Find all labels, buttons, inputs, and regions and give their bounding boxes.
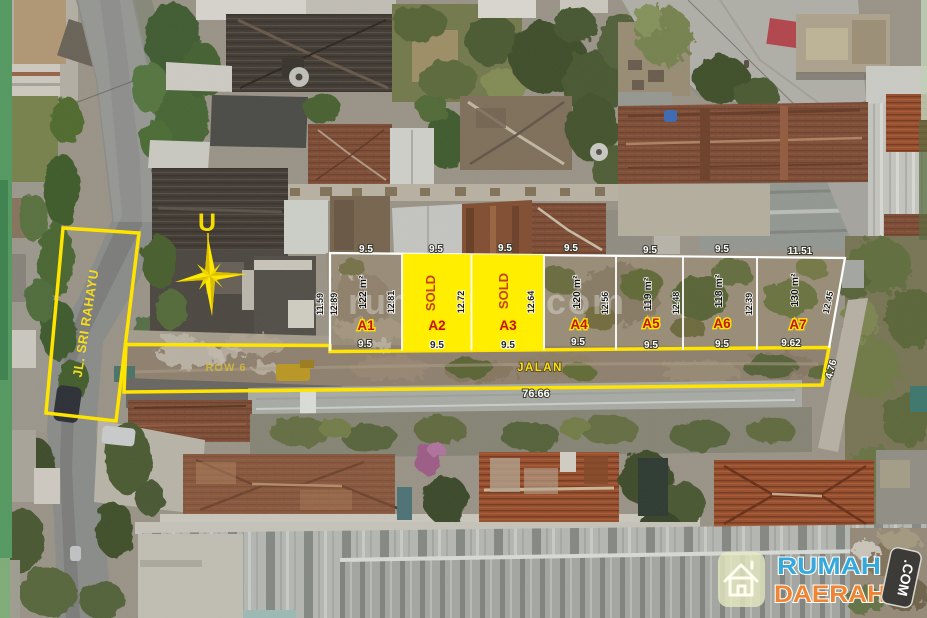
svg-text:A1: A1 [357,318,375,333]
svg-text:12.81: 12.81 [386,291,396,314]
svg-text:76.66: 76.66 [522,388,550,400]
svg-text:11.51: 11.51 [788,246,813,257]
svg-text:U: U [198,209,216,237]
svg-text:9.5: 9.5 [501,340,515,351]
svg-text:9.62: 9.62 [781,338,801,349]
svg-text:118 m²: 118 m² [713,274,725,307]
svg-text:119 m²: 119 m² [642,277,654,310]
svg-text:A7: A7 [789,317,806,332]
svg-text:9.5: 9.5 [564,243,578,254]
svg-text:12.39: 12.39 [744,293,754,316]
svg-text:9.5: 9.5 [715,339,729,350]
svg-text:11.59: 11.59 [315,293,325,315]
svg-text:SOLD: SOLD [496,273,511,309]
svg-text:12.72: 12.72 [456,291,466,314]
svg-text:A4: A4 [570,317,588,332]
svg-text:RUMAH: RUMAH [777,553,881,580]
svg-text:9.5: 9.5 [644,340,658,351]
svg-text:120 m²: 120 m² [571,275,583,309]
svg-text:12.64: 12.64 [526,291,536,314]
svg-text:9.5: 9.5 [359,244,373,255]
svg-text:A3: A3 [499,318,517,333]
svg-text:DAERAH: DAERAH [774,581,886,608]
svg-text:12.89: 12.89 [329,293,339,316]
svg-text:A5: A5 [642,316,660,331]
svg-text:12.56: 12.56 [600,292,610,315]
svg-text:ROW 6: ROW 6 [205,362,246,374]
svg-text:SOLD: SOLD [423,275,438,311]
svg-text:9.5: 9.5 [430,340,444,351]
svg-text:12.48: 12.48 [671,292,681,315]
svg-text:9.5: 9.5 [358,339,372,350]
svg-text:A6: A6 [713,316,731,331]
svg-text:122 m²: 122 m² [357,275,369,309]
svg-text:9.5: 9.5 [715,244,729,255]
svg-text:130 m²: 130 m² [789,273,801,307]
svg-text:9.5: 9.5 [571,337,585,348]
svg-text:9.5: 9.5 [643,245,657,256]
svg-text:JALAN: JALAN [517,362,563,374]
svg-text:9.5: 9.5 [429,244,443,255]
svg-text:9.5: 9.5 [498,243,512,254]
svg-text:A2: A2 [428,318,445,333]
